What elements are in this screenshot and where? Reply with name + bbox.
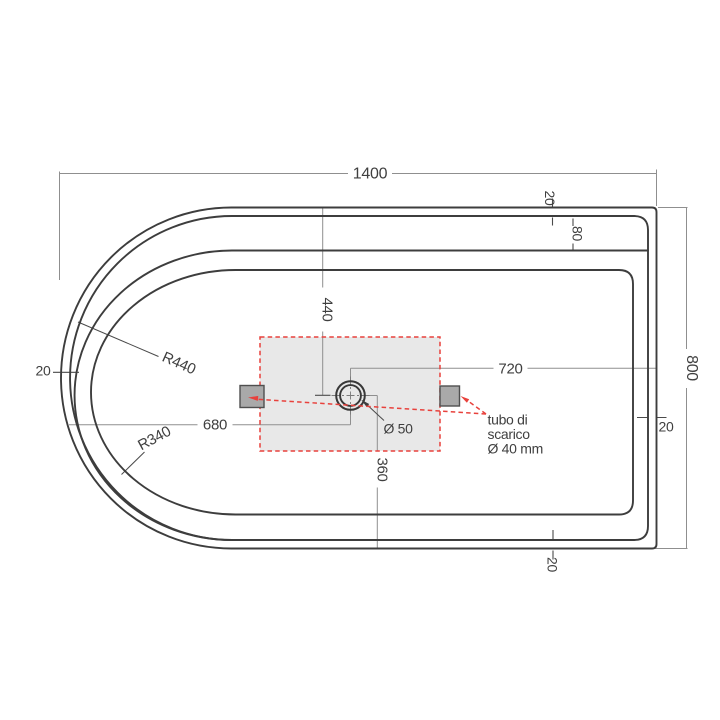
- dim-360-text: 360: [373, 457, 390, 481]
- dim-440-text: 440: [319, 297, 336, 321]
- dim-680-text: 680: [203, 417, 227, 434]
- drawing-svg: 1400 800 20 80 20 20 20 440 720 680 360 …: [0, 0, 720, 720]
- radius-outer-text: R440: [160, 349, 199, 379]
- radius-inner-text: R340: [135, 423, 174, 454]
- dim-1400-text: 1400: [353, 166, 388, 183]
- dim-20-right-text: 20: [659, 419, 674, 435]
- dim-720-text: 720: [498, 360, 522, 377]
- dim-20-bottom-text: 20: [545, 557, 561, 572]
- dim-800-text: 800: [683, 355, 700, 381]
- radius-outer-leader: [78, 322, 159, 357]
- drain-pipe-leader-right: [466, 400, 486, 415]
- drain-diameter-text: Ø 50: [384, 421, 414, 437]
- dim-800-ext: [653, 208, 688, 549]
- drain-exit-marker-right: [440, 386, 460, 406]
- drain-zone-fill: [260, 337, 440, 451]
- dim-80-text: 80: [570, 226, 586, 241]
- drain-callout-line3: Ø 40 mm: [488, 441, 543, 457]
- dim-20-left-text: 20: [36, 363, 51, 379]
- dim-20-top-text: 20: [542, 191, 558, 206]
- shower-tray-technical-drawing: 1400 800 20 80 20 20 20 440 720 680 360 …: [0, 0, 720, 720]
- drain-pipe-arrowhead-right: [461, 396, 470, 403]
- drain-exit-marker-left: [240, 386, 264, 408]
